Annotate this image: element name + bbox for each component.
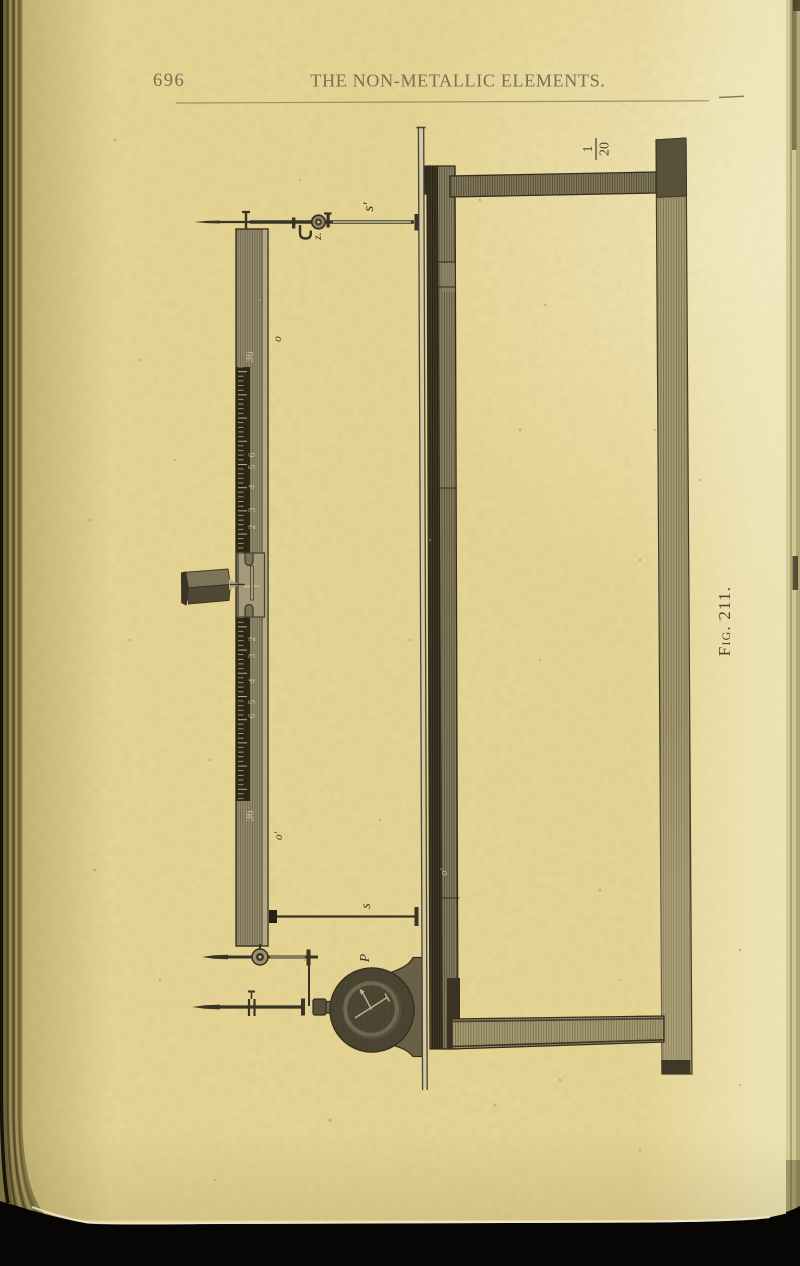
svg-text:696: 696 (153, 71, 185, 91)
svg-text:36: 36 (244, 810, 256, 822)
svg-text:4: 4 (248, 678, 258, 683)
svg-text:2: 2 (248, 524, 258, 529)
svg-text:3: 3 (248, 507, 258, 512)
svg-text:s′: s′ (361, 202, 377, 212)
svg-text:3: 3 (248, 653, 258, 658)
svg-text:Fig. 211.: Fig. 211. (715, 586, 734, 657)
svg-text:1: 1 (253, 583, 263, 588)
svg-text:6: 6 (248, 713, 258, 718)
svg-text:36: 36 (244, 351, 256, 363)
svg-text:o′: o′ (273, 831, 285, 840)
svg-text:5: 5 (248, 464, 258, 469)
svg-text:o′: o′ (439, 868, 450, 876)
svg-text:6: 6 (248, 452, 258, 457)
svg-text:1: 1 (581, 146, 596, 153)
svg-text:2: 2 (248, 636, 258, 641)
svg-text:5: 5 (248, 699, 258, 704)
svg-text:P: P (357, 954, 372, 963)
svg-text:THE NON-METALLIC ELEMENTS.: THE NON-METALLIC ELEMENTS. (310, 71, 605, 91)
svg-text:20: 20 (598, 142, 613, 156)
svg-text:s: s (359, 903, 374, 909)
svg-text:4: 4 (248, 484, 258, 489)
svg-text:o: o (272, 336, 284, 342)
svg-text:z.: z. (312, 232, 324, 240)
